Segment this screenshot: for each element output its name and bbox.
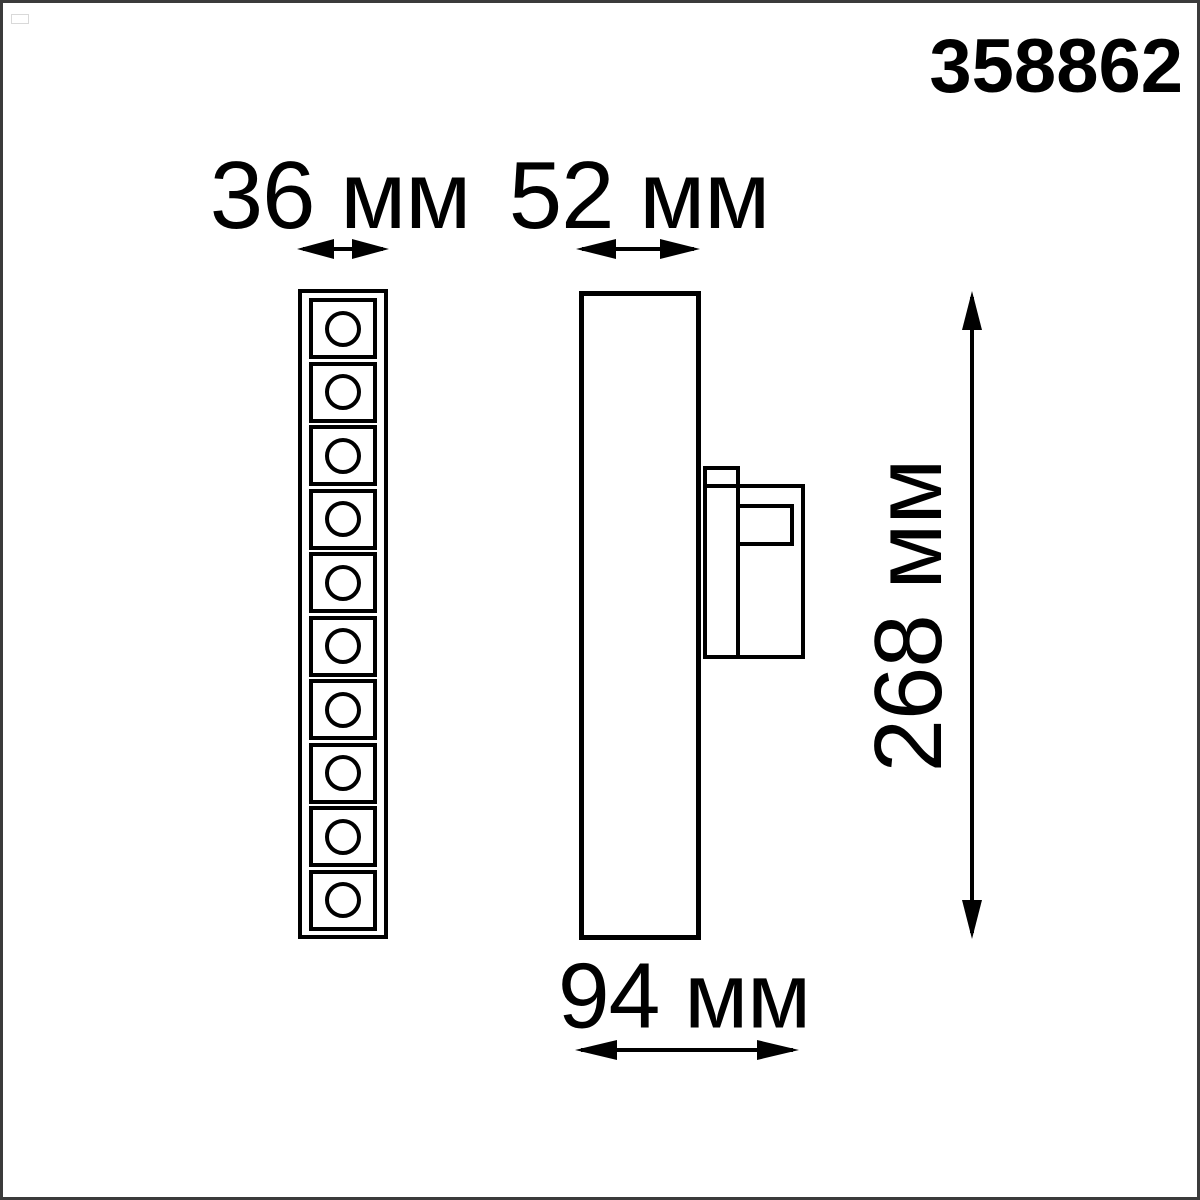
led-lens-circle <box>325 374 361 410</box>
side-width-arrow-icon <box>576 237 700 261</box>
led-lens-circle <box>325 311 361 347</box>
product-dimension-drawing: 358862 36 мм 52 мм 268 мм 94 мм <box>0 0 1200 1200</box>
scan-artifact <box>11 14 29 24</box>
led-lens-circle <box>325 882 361 918</box>
led-lens-circle <box>325 438 361 474</box>
led-grid <box>302 293 384 935</box>
led-cell <box>309 298 377 359</box>
led-cell <box>309 616 377 677</box>
led-cell <box>309 425 377 486</box>
track-adapter-notch <box>736 504 794 546</box>
led-cell <box>309 679 377 740</box>
led-cell <box>309 489 377 550</box>
led-lens-circle <box>325 692 361 728</box>
led-cell <box>309 552 377 613</box>
product-code: 358862 <box>929 29 1183 105</box>
led-lens-circle <box>325 755 361 791</box>
led-lens-circle <box>325 628 361 664</box>
led-cell <box>309 806 377 867</box>
front-view <box>298 289 388 939</box>
depth-arrow-icon <box>575 1038 799 1062</box>
led-lens-circle <box>325 819 361 855</box>
led-cell <box>309 743 377 804</box>
side-width-label: 52 мм <box>509 148 769 244</box>
led-lens-circle <box>325 501 361 537</box>
front-width-label: 36 мм <box>210 148 470 244</box>
height-label: 268 мм <box>861 460 957 773</box>
front-width-arrow-icon <box>297 237 389 261</box>
led-cell <box>309 870 377 931</box>
led-lens-circle <box>325 565 361 601</box>
led-cell <box>309 362 377 423</box>
side-view-body <box>579 291 701 940</box>
depth-label: 94 мм <box>558 950 810 1043</box>
height-arrow-icon <box>960 291 984 939</box>
